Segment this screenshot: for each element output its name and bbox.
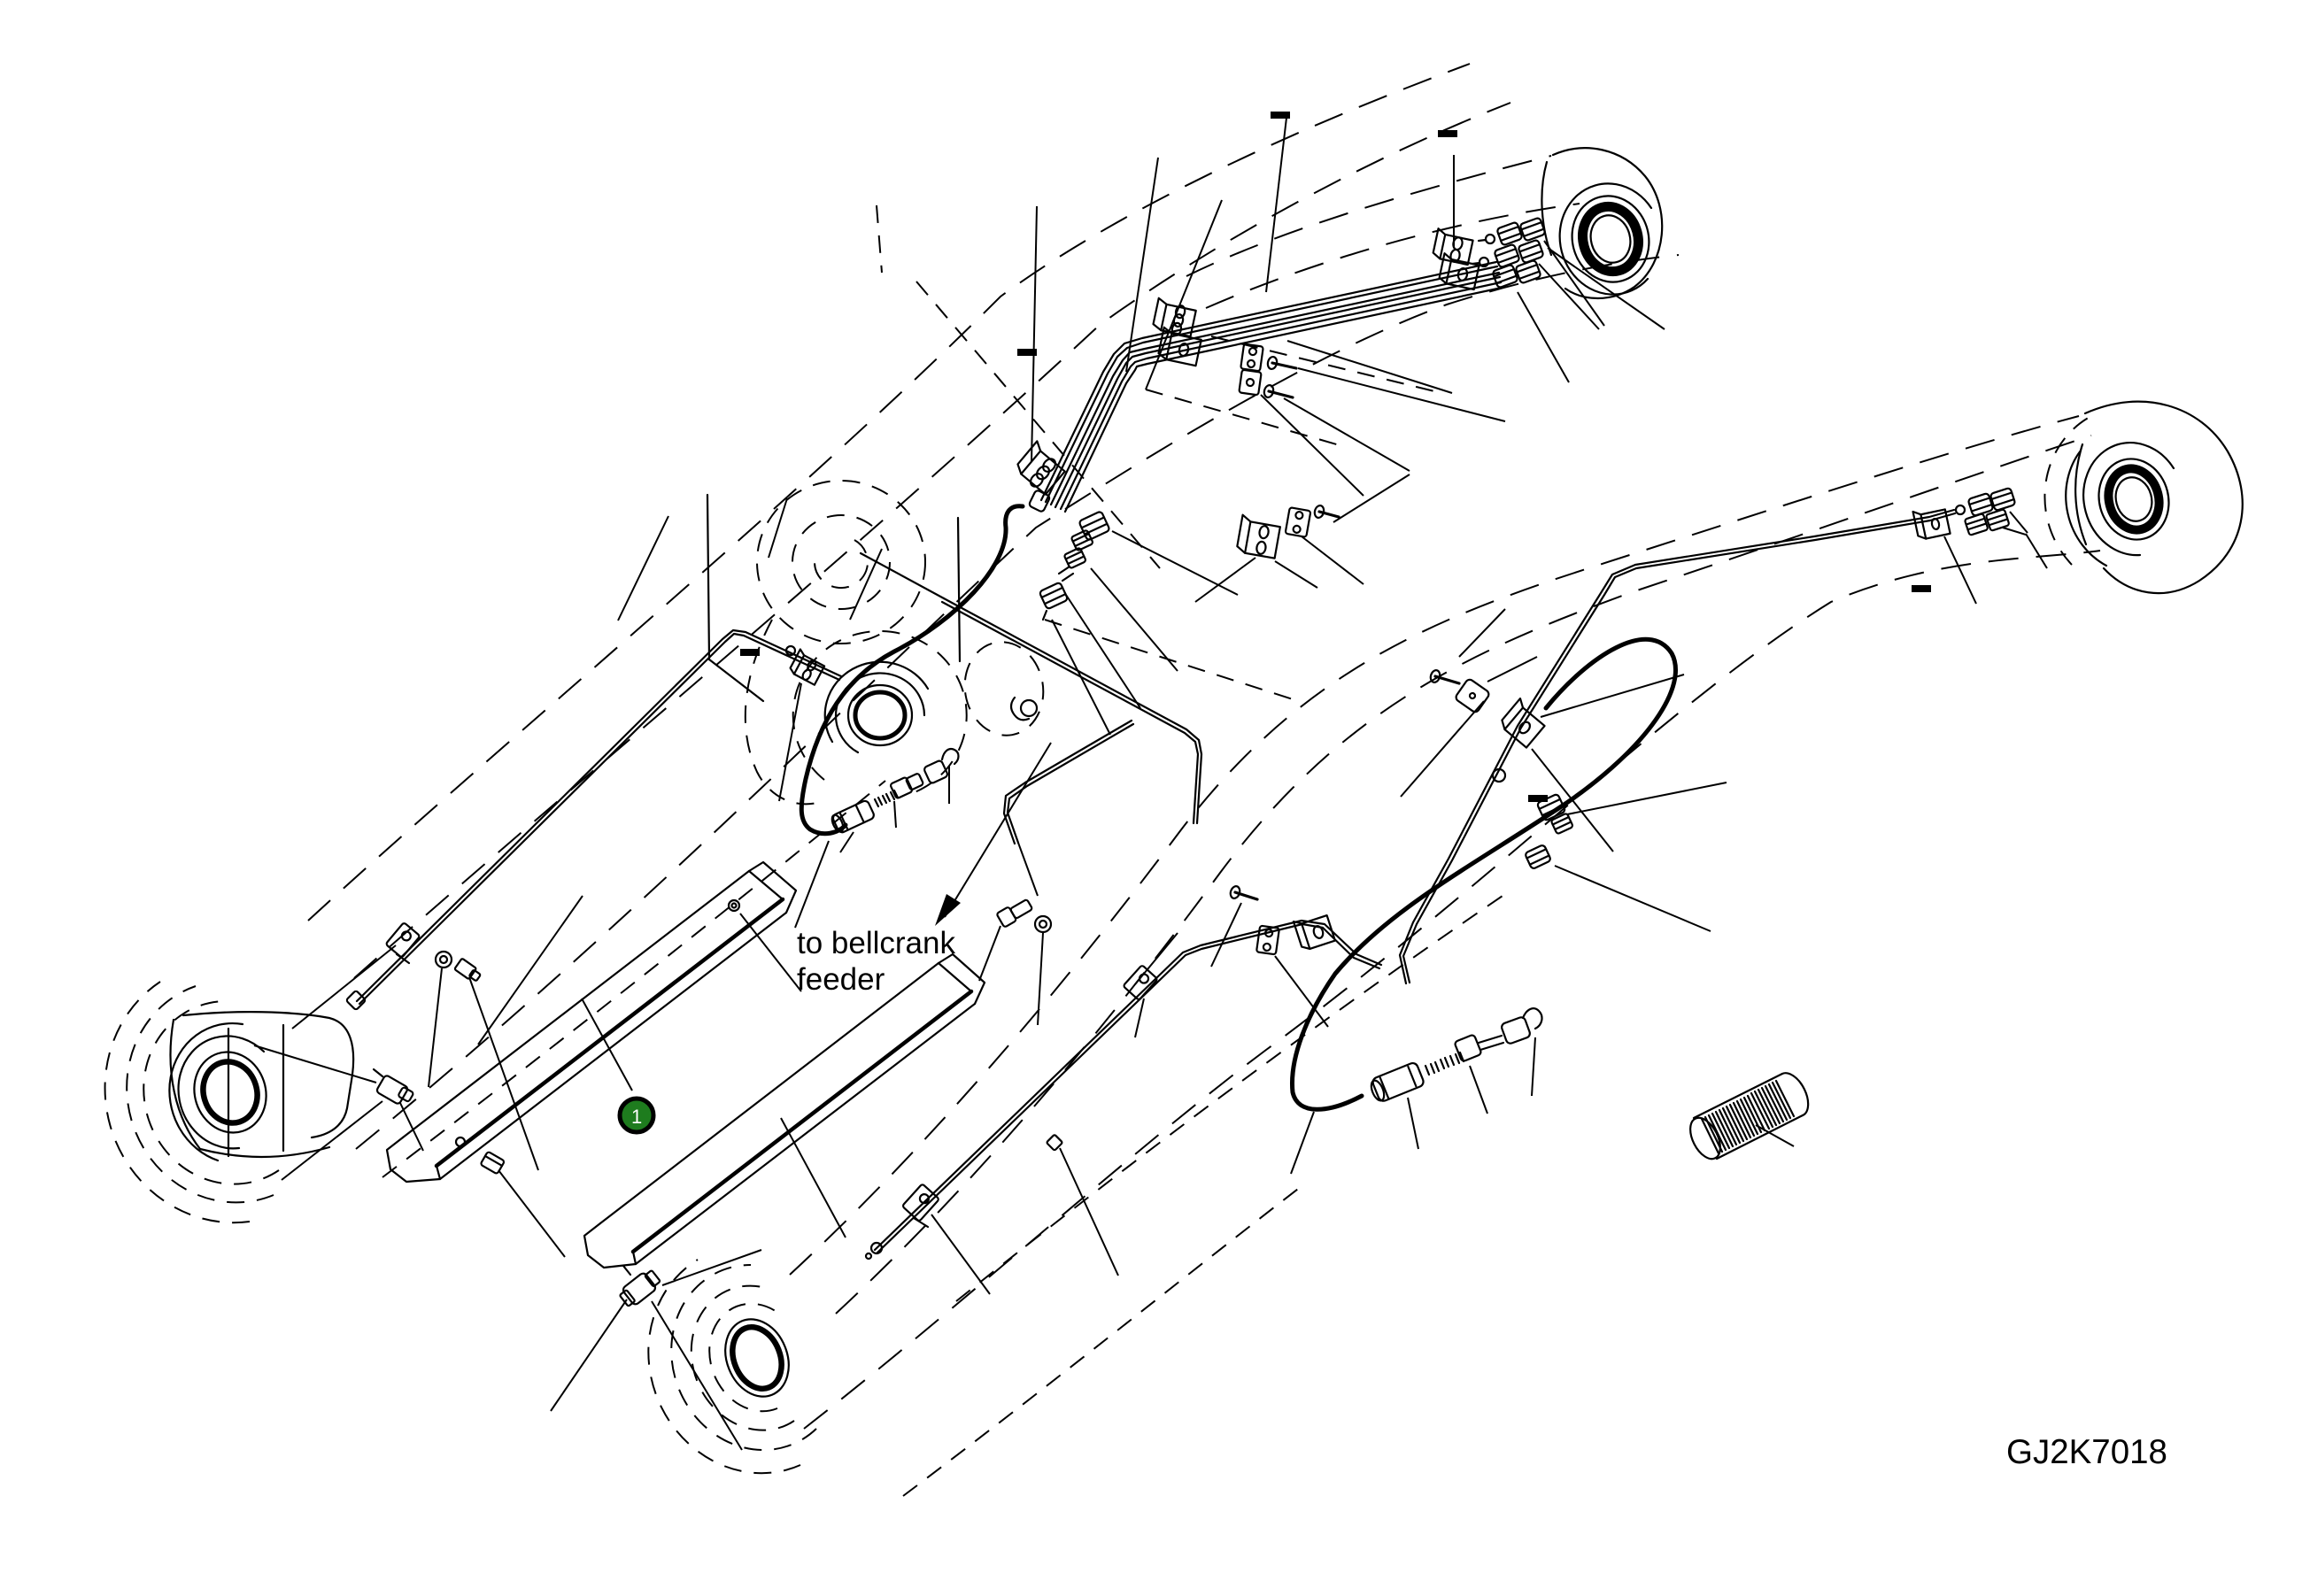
svg-text:to bellcrank: to bellcrank bbox=[797, 926, 955, 960]
svg-text:1: 1 bbox=[631, 1106, 642, 1128]
svg-text:GJ2K7018: GJ2K7018 bbox=[2006, 1433, 2167, 1471]
svg-text:feeder: feeder bbox=[797, 962, 885, 997]
